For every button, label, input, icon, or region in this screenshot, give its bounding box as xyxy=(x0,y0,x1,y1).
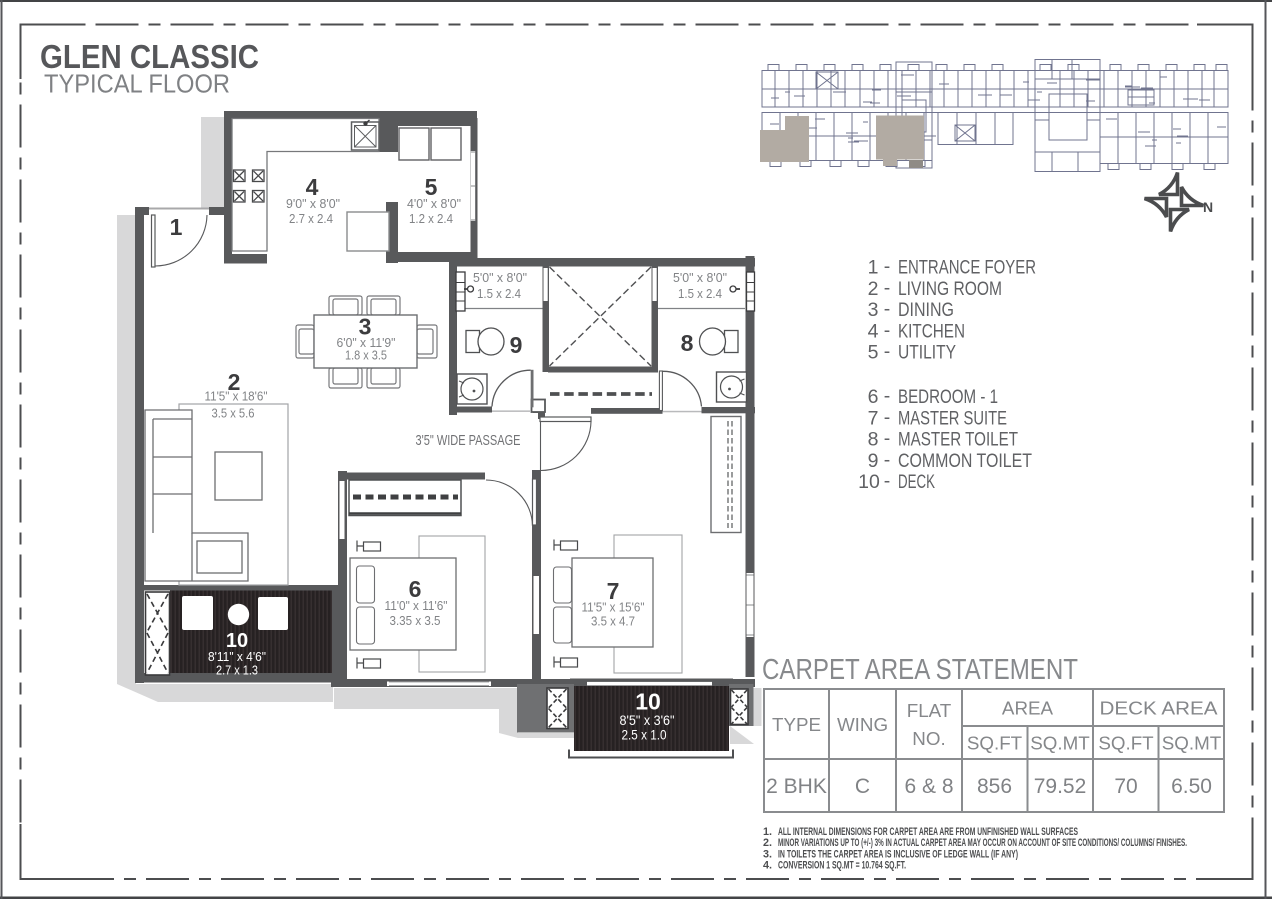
svg-text:-: - xyxy=(884,470,891,492)
svg-text:TYPICAL FLOOR: TYPICAL FLOOR xyxy=(44,69,230,99)
svg-text:3.5 x 4.7: 3.5 x 4.7 xyxy=(591,614,635,629)
svg-text:CONVERSION 1 SQ.MT = 10.764 SQ: CONVERSION 1 SQ.MT = 10.764 SQ.FT. xyxy=(778,860,906,872)
svg-text:SQ.FT: SQ.FT xyxy=(967,733,1023,754)
svg-text:CARPET AREA STATEMENT: CARPET AREA STATEMENT xyxy=(762,654,1078,686)
svg-text:2.7 x 1.3: 2.7 x 1.3 xyxy=(216,664,258,678)
svg-text:4'0" x 8'0": 4'0" x 8'0" xyxy=(407,196,461,211)
svg-text:11'5" x 18'6": 11'5" x 18'6" xyxy=(205,389,268,404)
svg-text:11'5" x 15'6": 11'5" x 15'6" xyxy=(582,600,645,615)
svg-text:MASTER TOILET: MASTER TOILET xyxy=(898,429,1018,451)
svg-text:SQ.FT: SQ.FT xyxy=(1098,733,1154,754)
svg-text:5'0" x 8'0": 5'0" x 8'0" xyxy=(473,270,527,285)
svg-text:-: - xyxy=(884,256,891,278)
svg-text:-: - xyxy=(884,277,891,299)
svg-text:DECK: DECK xyxy=(898,471,935,493)
svg-text:-: - xyxy=(884,449,891,471)
svg-text:9: 9 xyxy=(510,332,523,358)
svg-text:FLAT: FLAT xyxy=(907,700,952,721)
svg-text:8: 8 xyxy=(681,330,694,356)
svg-text:AREA: AREA xyxy=(1002,698,1054,719)
svg-text:MASTER SUITE: MASTER SUITE xyxy=(898,407,1007,429)
svg-text:KITCHEN: KITCHEN xyxy=(898,320,965,342)
svg-text:-: - xyxy=(884,406,891,428)
svg-text:6: 6 xyxy=(868,386,879,408)
svg-text:4.: 4. xyxy=(763,860,772,872)
svg-text:70: 70 xyxy=(1114,775,1137,798)
svg-text:2.5 x 1.0: 2.5 x 1.0 xyxy=(622,727,667,743)
svg-text:2: 2 xyxy=(868,278,879,300)
svg-text:2 BHK: 2 BHK xyxy=(766,775,827,798)
svg-text:5'0" x 8'0": 5'0" x 8'0" xyxy=(673,270,727,285)
svg-text:6 & 8: 6 & 8 xyxy=(904,775,953,798)
svg-text:10: 10 xyxy=(858,471,880,493)
svg-text:7: 7 xyxy=(868,407,879,429)
svg-text:DINING: DINING xyxy=(898,299,954,321)
svg-text:10: 10 xyxy=(226,630,248,652)
svg-text:8: 8 xyxy=(868,429,879,451)
svg-text:9: 9 xyxy=(868,450,879,472)
svg-text:3'5" WIDE PASSAGE: 3'5" WIDE PASSAGE xyxy=(416,432,521,449)
svg-text:9'0" x 8'0": 9'0" x 8'0" xyxy=(286,196,340,211)
svg-text:-: - xyxy=(884,298,891,320)
svg-text:1: 1 xyxy=(868,257,879,279)
svg-text:3.5 x 5.6: 3.5 x 5.6 xyxy=(212,406,255,421)
svg-text:1.5 x 2.4: 1.5 x 2.4 xyxy=(678,286,722,301)
svg-text:5: 5 xyxy=(868,342,879,364)
svg-text:4: 4 xyxy=(868,320,879,342)
svg-text:-: - xyxy=(884,341,891,363)
svg-text:-: - xyxy=(884,385,891,407)
svg-text:8'11" x 4'6": 8'11" x 4'6" xyxy=(208,650,266,664)
svg-text:2.: 2. xyxy=(763,837,772,849)
svg-text:-: - xyxy=(884,319,891,341)
svg-text:SQ.MT: SQ.MT xyxy=(1162,733,1222,754)
svg-text:6.50: 6.50 xyxy=(1171,775,1212,798)
svg-text:COMMON TOILET: COMMON TOILET xyxy=(898,450,1032,472)
svg-text:C: C xyxy=(855,775,870,798)
svg-text:1.8 x 3.5: 1.8 x 3.5 xyxy=(345,348,387,363)
svg-text:LIVING ROOM: LIVING ROOM xyxy=(898,278,1002,300)
svg-text:3: 3 xyxy=(868,299,879,321)
svg-text:MINOR VARIATIONS UP TO (+/-) 3: MINOR VARIATIONS UP TO (+/-) 3% IN ACTUA… xyxy=(778,837,1187,849)
svg-text:1.5 x 2.4: 1.5 x 2.4 xyxy=(477,286,521,301)
svg-text:856: 856 xyxy=(977,775,1012,798)
svg-text:ENTRANCE FOYER: ENTRANCE FOYER xyxy=(898,257,1036,279)
svg-text:DECK AREA: DECK AREA xyxy=(1100,698,1219,719)
svg-text:1: 1 xyxy=(170,214,183,240)
svg-text:11'0" x 11'6": 11'0" x 11'6" xyxy=(385,598,448,613)
svg-text:10: 10 xyxy=(635,689,661,715)
svg-text:N: N xyxy=(1203,199,1213,215)
svg-text:BEDROOM - 1: BEDROOM - 1 xyxy=(898,386,998,408)
svg-text:79.52: 79.52 xyxy=(1034,775,1087,798)
svg-text:WING: WING xyxy=(837,714,888,735)
svg-text:2.7 x 2.4: 2.7 x 2.4 xyxy=(289,211,333,226)
svg-text:NO.: NO. xyxy=(912,728,945,749)
svg-text:-: - xyxy=(884,428,891,450)
svg-text:SQ.MT: SQ.MT xyxy=(1030,733,1090,754)
svg-text:UTILITY: UTILITY xyxy=(898,342,956,364)
svg-text:3.35 x 3.5: 3.35 x 3.5 xyxy=(390,613,441,628)
svg-text:1.2 x 2.4: 1.2 x 2.4 xyxy=(409,211,453,226)
svg-text:TYPE: TYPE xyxy=(772,714,821,735)
